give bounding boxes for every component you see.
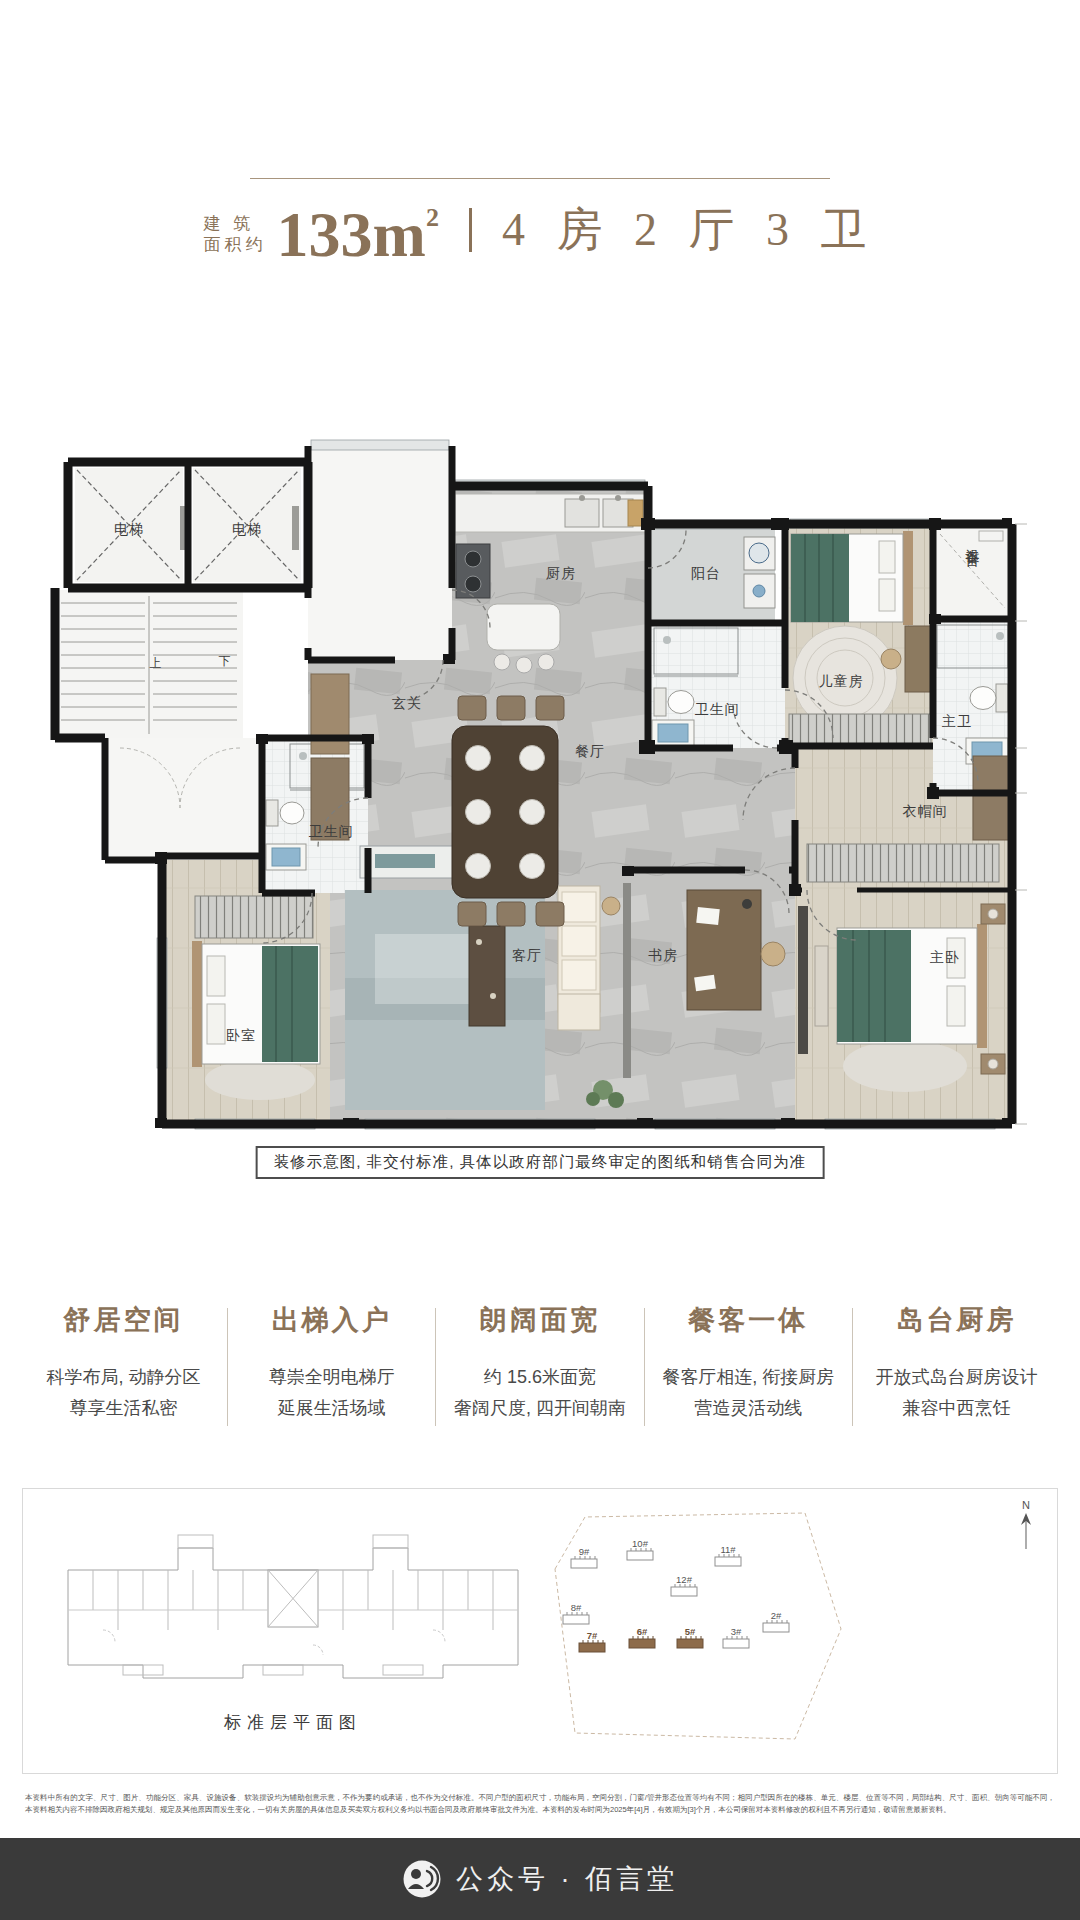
label-kitchen: 厨房	[546, 565, 576, 581]
feature-line: 尊崇全明电梯厅	[228, 1362, 435, 1393]
feature-title: 舒居空间	[20, 1302, 227, 1338]
compass-n-label: N	[1013, 1499, 1039, 1511]
label-cloakroom: 衣帽间	[903, 803, 948, 819]
label-foyer: 玄关	[392, 695, 422, 711]
fine-print-line-2: 本资料相关内容不排除因政府相关规划、规定及其他原因而发生变化，一切有关房屋的具体…	[25, 1805, 951, 1814]
feature-col-3: 朗阔面宽 约 15.6米面宽 奢阔尺度, 四开间朝南	[436, 1302, 643, 1424]
building-11: 11#	[715, 1544, 741, 1566]
label-elevator-1: 电梯	[114, 521, 144, 537]
dining-set	[452, 696, 564, 926]
standard-floorplate-caption: 标准层平面图	[63, 1711, 523, 1734]
label-master-bedroom: 主卧	[930, 949, 960, 965]
building-5: 5#	[677, 1626, 703, 1648]
svg-text:11#: 11#	[720, 1544, 736, 1555]
feature-line: 尊享生活私密	[20, 1393, 227, 1424]
building-7: 7#	[579, 1630, 605, 1652]
label-living: 客厅	[512, 947, 542, 963]
bottom-panel: 标准层平面图 9# 10# 11# 12# 8# 7# 6#	[22, 1488, 1058, 1774]
building-10: 10#	[627, 1538, 653, 1560]
site-plan: 9# 10# 11# 12# 8# 7# 6# 5#	[543, 1507, 853, 1755]
building-9: 9#	[571, 1546, 597, 1568]
footer-account-text: 公众号 · 佰言堂	[456, 1861, 678, 1897]
feature-col-2: 出梯入户 尊崇全明电梯厅 延展生活场域	[228, 1302, 435, 1424]
label-bath-mid: 卫生间	[695, 701, 740, 717]
feature-line: 营造灵活动线	[645, 1393, 852, 1424]
label-stair-up: 上	[150, 656, 163, 670]
layout-text: 4 房 2 厅 3 卫	[502, 199, 877, 261]
svg-text:10#: 10#	[632, 1538, 649, 1549]
label-master-bath: 主卫	[942, 713, 972, 729]
feature-col-5: 岛台厨房 开放式岛台厨房设计 兼容中西烹饪	[853, 1302, 1060, 1424]
plan-note: 装修示意图, 非交付标准, 具体以政府部门最终审定的图纸和销售合同为准	[256, 1146, 825, 1179]
label-balcony: 阳台	[691, 565, 721, 581]
floorplan: 电梯 电梯 上 下 厨房 阳台 儿童房 设备平台 卫生间 主卫 玄关 餐厅 卫生…	[45, 438, 1035, 1138]
feature-col-1: 舒居空间 科学布局, 动静分区 尊享生活私密	[20, 1302, 227, 1424]
svg-text:6#: 6#	[637, 1626, 648, 1637]
dimension-ticks	[1015, 524, 1027, 1124]
label-bedroom: 卧室	[226, 1027, 256, 1043]
footer-bar: 公众号 · 佰言堂	[0, 1838, 1080, 1920]
area-prefix-bottom: 面积约	[204, 234, 267, 255]
standard-floorplate-drawing	[63, 1515, 523, 1705]
label-dining: 餐厅	[575, 743, 605, 759]
legal-fine-print: 本资料中所有的文字、尺寸、图片、功能分区、家具、设施设备、软装摆设均为辅助创意示…	[25, 1792, 1055, 1817]
building-6: 6#	[629, 1626, 655, 1648]
label-study: 书房	[648, 947, 678, 963]
feature-title: 岛台厨房	[853, 1302, 1060, 1338]
building-12: 12#	[671, 1574, 697, 1596]
header-rule	[250, 178, 830, 179]
feature-line: 延展生活场域	[228, 1393, 435, 1424]
compass-arrow-icon	[1015, 1511, 1037, 1551]
title-divider	[469, 208, 472, 252]
fine-print-line-1: 本资料中所有的文字、尺寸、图片、功能分区、家具、设施设备、软装摆设均为辅助创意示…	[25, 1793, 1055, 1802]
feature-line: 奢阔尺度, 四开间朝南	[436, 1393, 643, 1424]
label-bath-left: 卫生间	[309, 823, 354, 839]
feature-line: 兼容中西烹饪	[853, 1393, 1060, 1424]
poster-page: 建 筑 面积约 133m2 4 房 2 厅 3 卫	[0, 0, 1080, 1920]
feature-line: 餐客厅相连, 衔接厨房	[645, 1362, 852, 1393]
header-title: 建 筑 面积约 133m2 4 房 2 厅 3 卫	[0, 186, 1080, 267]
feature-title: 出梯入户	[228, 1302, 435, 1338]
label-elevator-2: 电梯	[232, 521, 262, 537]
feature-columns: 舒居空间 科学布局, 动静分区 尊享生活私密 出梯入户 尊崇全明电梯厅 延展生活…	[20, 1302, 1060, 1426]
label-stair-down: 下	[219, 654, 232, 668]
area-sup: 2	[426, 203, 439, 232]
svg-text:12#: 12#	[676, 1574, 693, 1585]
feature-title: 朗阔面宽	[436, 1302, 643, 1338]
building-2: 2#	[763, 1610, 789, 1632]
building-8: 8#	[563, 1602, 589, 1624]
label-kids-room: 儿童房	[819, 673, 864, 689]
area-value: 133m2	[277, 186, 439, 267]
area-prefix-top: 建 筑	[204, 213, 267, 234]
feature-title: 餐客一体	[645, 1302, 852, 1338]
svg-text:5#: 5#	[685, 1626, 696, 1637]
building-3: 3#	[723, 1626, 749, 1648]
official-account-logo-icon	[402, 1859, 442, 1899]
svg-text:3#: 3#	[731, 1626, 742, 1637]
feature-col-4: 餐客一体 餐客厅相连, 衔接厨房 营造灵活动线	[645, 1302, 852, 1424]
compass: N	[1013, 1499, 1039, 1555]
svg-text:2#: 2#	[771, 1610, 782, 1621]
area-prefix: 建 筑 面积约	[204, 213, 267, 255]
svg-text:9#: 9#	[579, 1546, 590, 1557]
feature-line: 科学布局, 动静分区	[20, 1362, 227, 1393]
feature-line: 开放式岛台厨房设计	[853, 1362, 1060, 1393]
feature-line: 约 15.6米面宽	[436, 1362, 643, 1393]
svg-text:8#: 8#	[571, 1602, 582, 1613]
svg-text:7#: 7#	[587, 1630, 598, 1641]
